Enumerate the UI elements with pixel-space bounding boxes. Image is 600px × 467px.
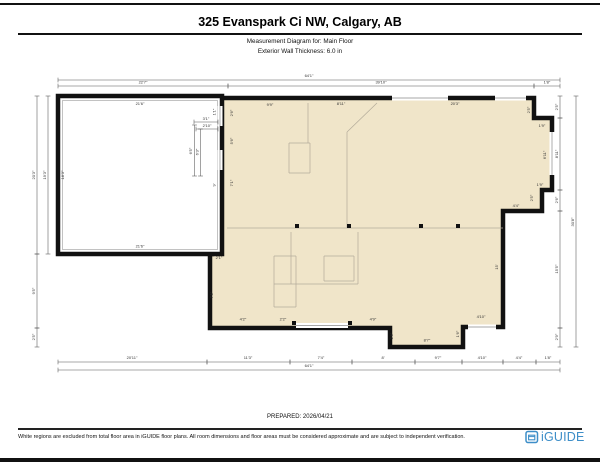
measurement-label: 6'11" bbox=[542, 150, 547, 159]
measurement-label: 19'3" bbox=[42, 170, 47, 179]
measurement-label: 4'2" bbox=[240, 317, 247, 322]
measurement-label: 15' bbox=[494, 264, 499, 269]
page-title: 325 Evanspark Ci NW, Calgary, AB bbox=[0, 15, 600, 29]
measurement-label: 3'1" bbox=[203, 116, 210, 121]
measurement-label: 4'9" bbox=[370, 317, 377, 322]
measurement-label: 11'3" bbox=[244, 355, 253, 360]
measurement-label: 4'10" bbox=[477, 314, 486, 319]
top-border-bar bbox=[0, 3, 600, 5]
measurement-label: 30'8" bbox=[570, 217, 575, 226]
disclaimer-text: White regions are excluded from total fl… bbox=[18, 434, 498, 440]
measurement-label: 8'7" bbox=[424, 338, 431, 343]
measurement-label: 20'3" bbox=[451, 101, 460, 106]
wall-nub bbox=[456, 224, 460, 228]
measurement-label: 2'6" bbox=[389, 332, 394, 339]
iguide-logo: iGUIDE bbox=[525, 428, 595, 445]
measurement-label: 7'4" bbox=[318, 355, 325, 360]
measurement-label: 64'1" bbox=[305, 363, 314, 368]
measurement-label: 5'6" bbox=[229, 137, 234, 144]
measurement-label: 8'11" bbox=[554, 149, 559, 158]
main-floor-outline bbox=[210, 98, 552, 347]
wall-nub bbox=[419, 224, 423, 228]
measurement-label: 1'9" bbox=[539, 123, 546, 128]
floorplan-svg: 64'1"22'7"39'10"1'8"20'11"11'3"7'4"8'9'7… bbox=[0, 0, 600, 462]
wall-nub bbox=[348, 321, 352, 325]
wall-nub bbox=[295, 224, 299, 228]
iguide-logo-icon bbox=[525, 430, 539, 444]
measurement-label: 1'1" bbox=[212, 108, 217, 115]
measurement-label: 9' bbox=[212, 183, 217, 186]
floorplan-area: 64'1"22'7"39'10"1'8"20'11"11'3"7'4"8'9'7… bbox=[0, 0, 600, 462]
measurement-label: 20'3" bbox=[31, 170, 36, 179]
measurement-label: 9'9" bbox=[267, 102, 274, 107]
measurement-label: 2'1" bbox=[216, 255, 223, 260]
title-divider bbox=[18, 33, 582, 35]
measurement-label: 20'11" bbox=[127, 355, 138, 360]
measurement-label: 2'10" bbox=[203, 123, 212, 128]
measurement-label: 6'3" bbox=[195, 148, 200, 155]
measurement-label: 1'8" bbox=[545, 355, 552, 360]
measurement-label: 21'6" bbox=[136, 244, 145, 249]
measurement-label: 4'4" bbox=[516, 355, 523, 360]
measurement-label: 18'3" bbox=[60, 170, 65, 179]
measurement-label: 2'5" bbox=[31, 333, 36, 340]
measurement-label: 7'5" bbox=[209, 291, 214, 298]
footer-divider bbox=[18, 428, 582, 430]
measurement-label: 21'6" bbox=[136, 101, 145, 106]
prepared-date: PREPARED: 2026/04/21 bbox=[0, 414, 600, 420]
measurement-label: 4'4" bbox=[513, 203, 520, 208]
measurement-label: 2'9" bbox=[554, 333, 559, 340]
iguide-logo-text: iGUIDE bbox=[541, 430, 585, 444]
measurement-label: 1'8" bbox=[544, 80, 551, 85]
measurement-label: 22'7" bbox=[139, 80, 148, 85]
measurement-label: 2'5" bbox=[554, 103, 559, 110]
measurement-label: 9'7" bbox=[435, 355, 442, 360]
measurement-label: 8'11" bbox=[337, 101, 346, 106]
measurement-label: 2'5" bbox=[526, 106, 531, 113]
measurement-label: 15'5" bbox=[554, 264, 559, 273]
wall-thickness-note: Exterior Wall Thickness: 6.0 in bbox=[0, 48, 600, 55]
measurement-label: 1'9" bbox=[537, 182, 544, 187]
measurement-label: 2'2" bbox=[280, 317, 287, 322]
measurement-label: 9'5" bbox=[31, 287, 36, 294]
measurement-label: 4'10" bbox=[478, 355, 487, 360]
measurement-label: 39'10" bbox=[375, 80, 387, 85]
garage-outline bbox=[58, 96, 222, 254]
measurement-label: 6'5" bbox=[188, 147, 193, 154]
bottom-border-bar bbox=[0, 458, 600, 462]
measurement-label: 2'6" bbox=[229, 109, 234, 116]
wall-nub bbox=[347, 224, 351, 228]
measurement-label: 2'6" bbox=[554, 196, 559, 203]
measurement-label: 7'1" bbox=[229, 179, 234, 186]
measurement-label: 1'6" bbox=[455, 330, 460, 337]
diagram-subtitle: Measurement Diagram for: Main Floor bbox=[0, 38, 600, 45]
measurement-label: 8' bbox=[382, 355, 385, 360]
wall-nub bbox=[292, 321, 296, 325]
measurement-label: 2'5" bbox=[529, 194, 534, 201]
measurement-label: 64'1" bbox=[305, 73, 314, 78]
